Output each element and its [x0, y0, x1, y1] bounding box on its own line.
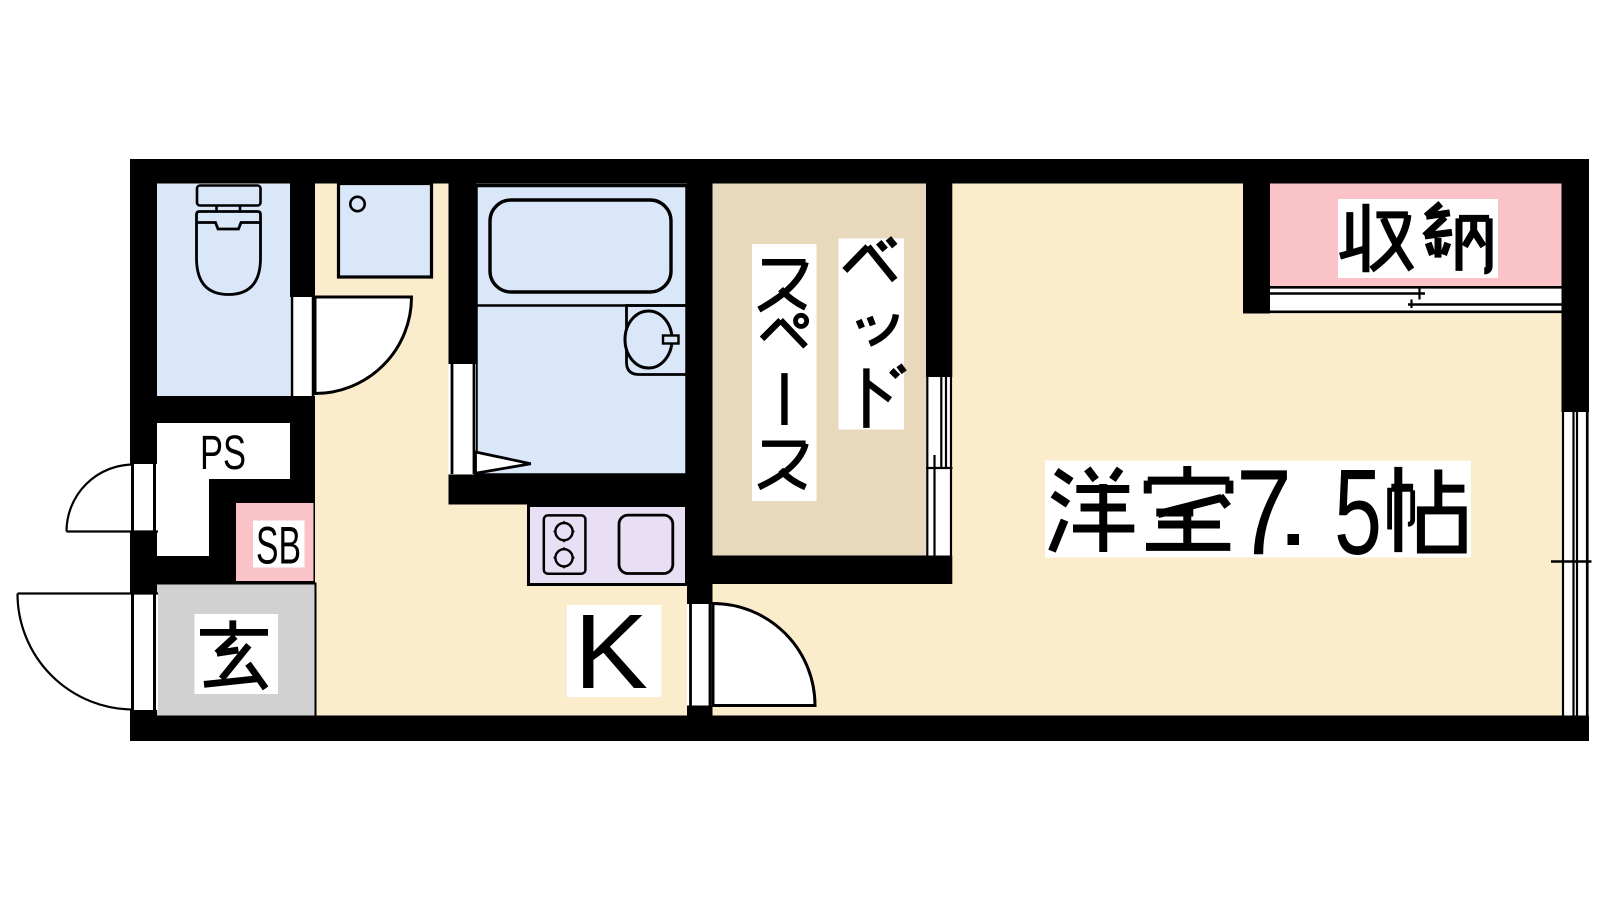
svg-text:K: K [574, 593, 648, 711]
svg-text:SB: SB [256, 517, 301, 576]
svg-text:7: 7 [1236, 444, 1292, 580]
svg-text:PS: PS [200, 427, 246, 480]
svg-text:5: 5 [1334, 444, 1382, 580]
